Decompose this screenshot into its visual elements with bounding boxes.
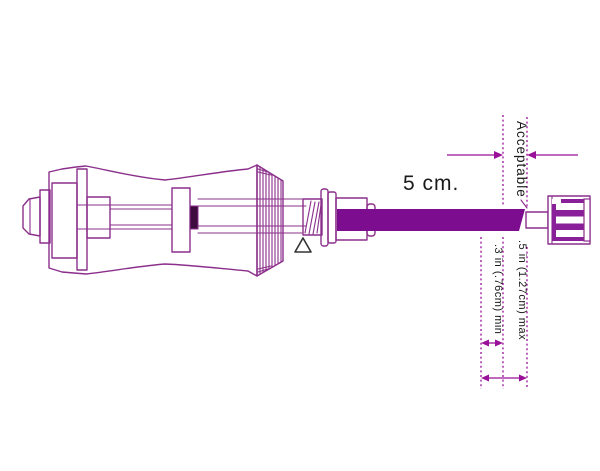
spring	[303, 199, 322, 235]
max-dimension-label: .5 in (1.27cm) max	[516, 240, 528, 340]
internal-mechanism	[52, 169, 306, 270]
min-dimension-arrow	[481, 340, 503, 347]
tube-length-label: 5 cm.	[403, 172, 459, 195]
plunger-seal	[190, 206, 198, 229]
ribbed-grip	[257, 165, 283, 276]
dimension-lines	[447, 115, 578, 389]
body-shell	[49, 165, 257, 276]
max-dimension-arrow	[481, 375, 527, 382]
device-diagram: 5 cm. Acceptable .5 in (1.27cm) max .3 i…	[0, 0, 600, 471]
flange	[321, 189, 336, 246]
tubing	[337, 200, 527, 231]
acceptable-label: Acceptable	[514, 121, 529, 198]
min-dimension-label: .3 in (.76cm) min	[492, 244, 504, 334]
position-marker-triangle	[295, 238, 311, 252]
luer-connector	[526, 196, 590, 244]
nose-cap	[23, 190, 50, 243]
acceptable-range-arrows	[447, 151, 578, 159]
injector-body	[23, 165, 306, 276]
technical-diagram-canvas: 5 cm. Acceptable .5 in (1.27cm) max .3 i…	[0, 0, 600, 471]
